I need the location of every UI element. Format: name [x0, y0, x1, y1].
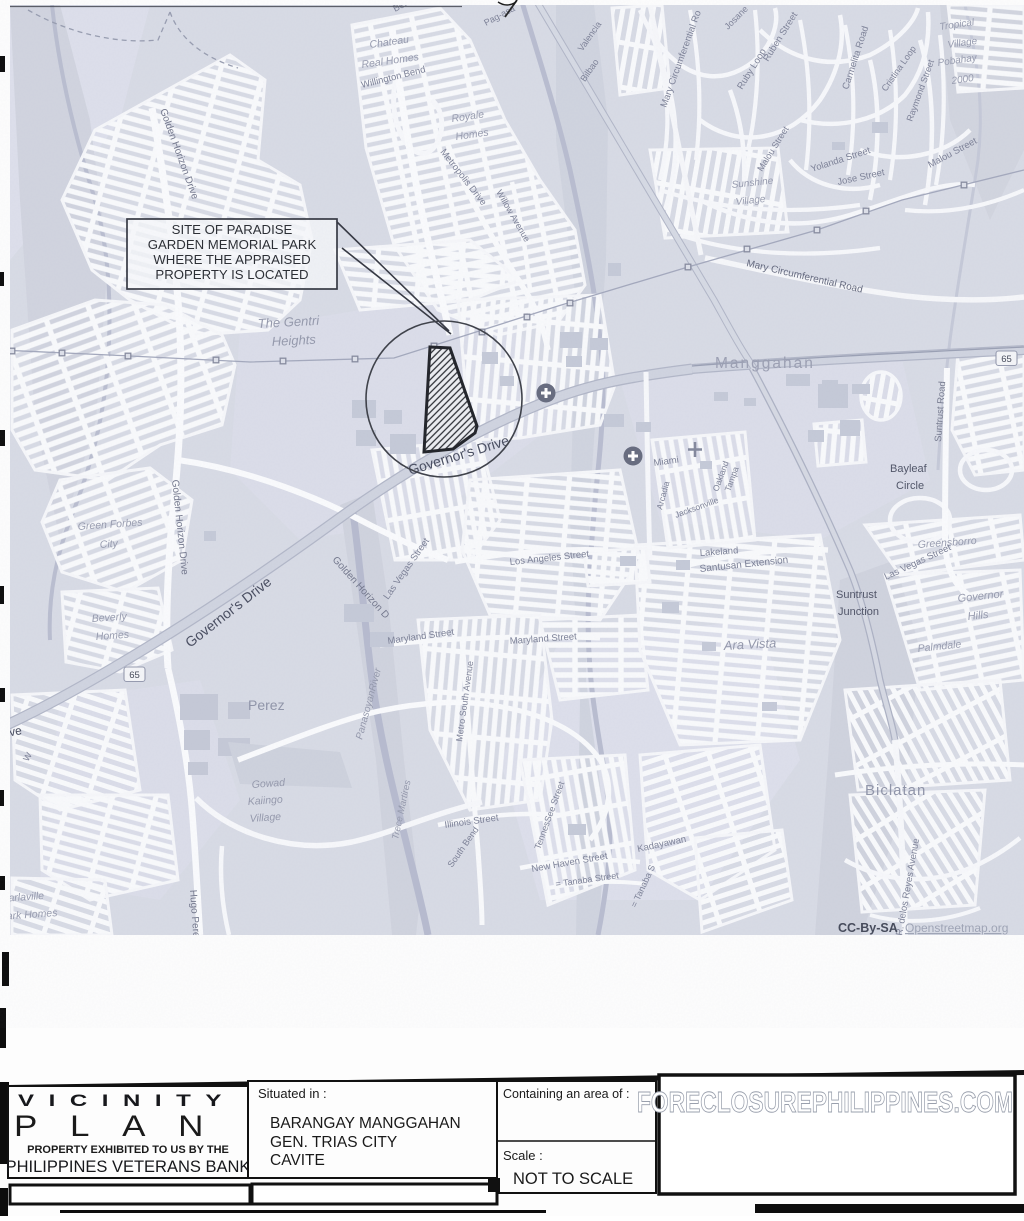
svg-text:PHILIPPINES VETERANS BANK: PHILIPPINES VETERANS BANK [6, 1158, 251, 1176]
svg-text:Situated in :: Situated in : [258, 1086, 327, 1101]
svg-text:VICINITY: VICINITY [18, 1092, 236, 1110]
svg-text:PROPERTY EXHIBITED TO US BY TH: PROPERTY EXHIBITED TO US BY THE [27, 1144, 229, 1156]
svg-text:GEN. TRIAS CITY: GEN. TRIAS CITY [270, 1134, 397, 1151]
svg-text:NOT TO SCALE: NOT TO SCALE [513, 1170, 633, 1188]
svg-text:FORECLOSUREPHILIPPINES.COM: FORECLOSUREPHILIPPINES.COM [637, 1087, 1013, 1119]
svg-text:PLAN: PLAN [14, 1110, 236, 1143]
svg-text:Scale :: Scale : [503, 1148, 543, 1163]
svg-text:BARANGAY MANGGAHAN: BARANGAY MANGGAHAN [270, 1115, 461, 1132]
svg-text:CAVITE: CAVITE [270, 1152, 325, 1169]
svg-text:Containing an area of :: Containing an area of : [503, 1087, 629, 1101]
